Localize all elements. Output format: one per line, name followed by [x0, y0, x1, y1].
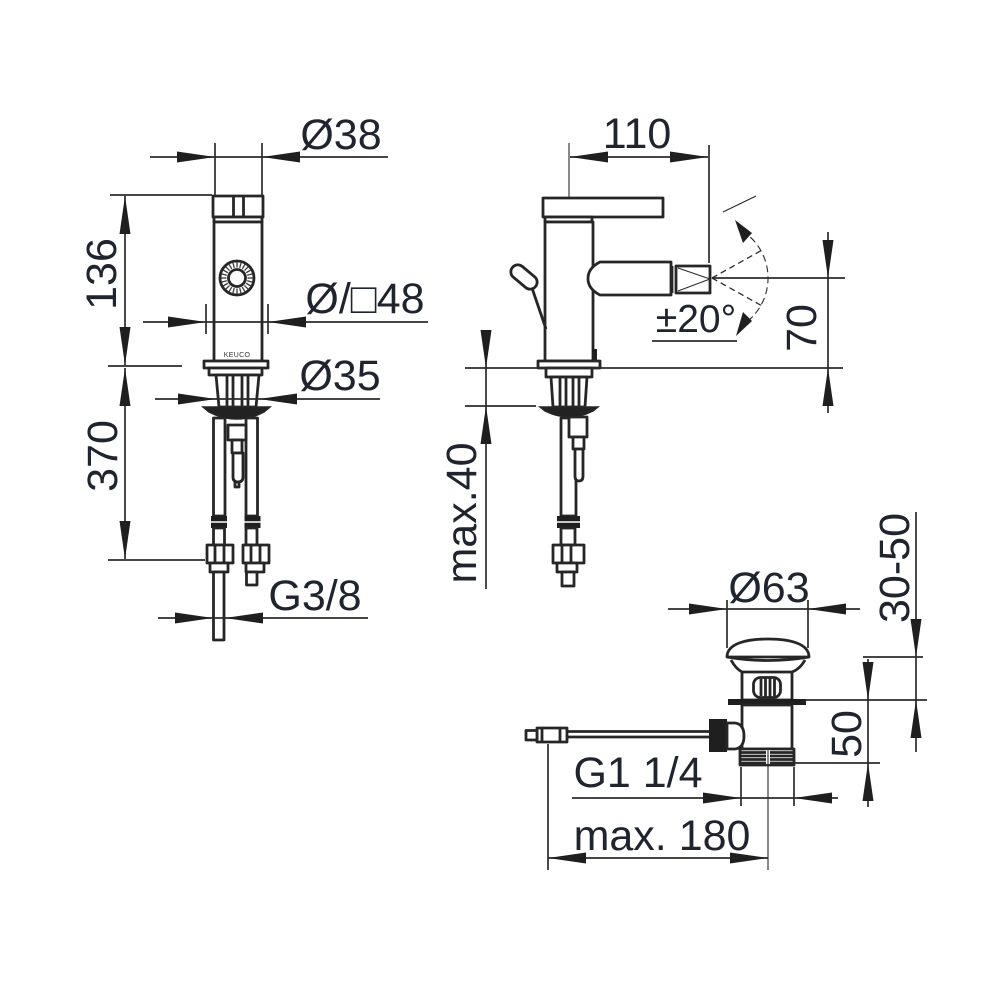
faucet-side-body [508, 143, 710, 586]
dim-label-max180: max. 180 [574, 812, 751, 860]
aerator-side [672, 266, 710, 293]
handle-lever [543, 198, 663, 217]
overflow-window [754, 678, 781, 698]
dim-label-20deg: ±20° [656, 298, 736, 341]
dim-label-dia63: Ø63 [728, 564, 809, 612]
dim-label-dia48: Ø/□48 [305, 275, 424, 323]
dim-label-50: 50 [823, 710, 871, 758]
waste-thread [740, 749, 794, 765]
brand-logo: KEUCO [224, 352, 251, 359]
drain-valve-view: Ø63 30-50 50 G1 1/4 max. 180 [526, 512, 927, 870]
aerator-front-icon [220, 261, 254, 295]
dim-label-g38: G3/8 [268, 572, 361, 620]
side-dimensions: 110 max.40 ±20° 70 [438, 110, 845, 589]
spout [588, 262, 671, 295]
dim-label-136: 136 [78, 238, 126, 310]
pull-rod [526, 719, 744, 752]
faucet-front-body: KEUCO [203, 196, 270, 640]
dim-label-g114: G1 1/4 [573, 749, 702, 797]
dim-label-dia35: Ø35 [299, 352, 380, 400]
dim-label-370: 370 [79, 420, 127, 492]
drain-dimensions: Ø63 30-50 50 G1 1/4 max. 180 [548, 512, 927, 870]
dim-label-110: 110 [603, 110, 672, 158]
popup-pull-knob [508, 262, 546, 329]
side-view: 110 max.40 ±20° 70 [438, 110, 845, 589]
technical-drawing-page: KEUCO [0, 0, 1000, 1000]
front-view: KEUCO [78, 111, 428, 640]
dim-label-dia38: Ø38 [300, 111, 381, 159]
dim-label-max40: max.40 [438, 442, 486, 583]
dim-label-70: 70 [778, 304, 826, 352]
faucet-dimension-diagram: KEUCO [0, 0, 1000, 1000]
popup-rod-front [228, 425, 246, 487]
plug-cap [727, 639, 809, 657]
dim-label-30-50: 30-50 [871, 513, 919, 623]
